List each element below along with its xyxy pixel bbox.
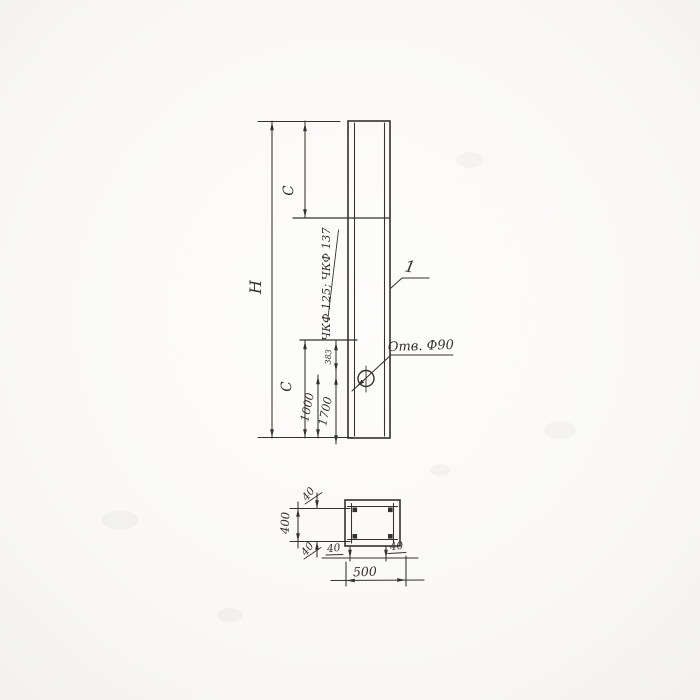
- zone-mark-label: ЧКФ 125; ЧКФ 137: [319, 227, 333, 341]
- scanned-drawing-page: Отв. Ф90 1 ЧКФ 125; ЧКФ 137 H C C 1000 1…: [0, 0, 700, 700]
- rebar-mark: [388, 508, 393, 513]
- section-width-label: 500: [353, 564, 377, 580]
- top-c-dim-label: C: [281, 184, 298, 196]
- section-cover-right-label: 40: [388, 540, 404, 554]
- bottom-c-dim-label: C: [279, 380, 296, 392]
- paper-background: [0, 0, 700, 700]
- hole-note-label: Отв. Ф90: [388, 338, 455, 355]
- rebar-mark: [353, 534, 358, 539]
- technical-drawing: Отв. Ф90 1 ЧКФ 125; ЧКФ 137 H C C 1000 1…: [0, 0, 700, 700]
- rebar-mark: [388, 534, 393, 539]
- rebar-mark: [353, 508, 358, 513]
- dim-small-label: 383: [324, 349, 334, 365]
- section-cover-left-label: 40: [325, 542, 341, 555]
- section-height-label: 400: [278, 512, 293, 535]
- dim-500-line: [331, 580, 424, 581]
- height-dim-label: H: [246, 279, 265, 295]
